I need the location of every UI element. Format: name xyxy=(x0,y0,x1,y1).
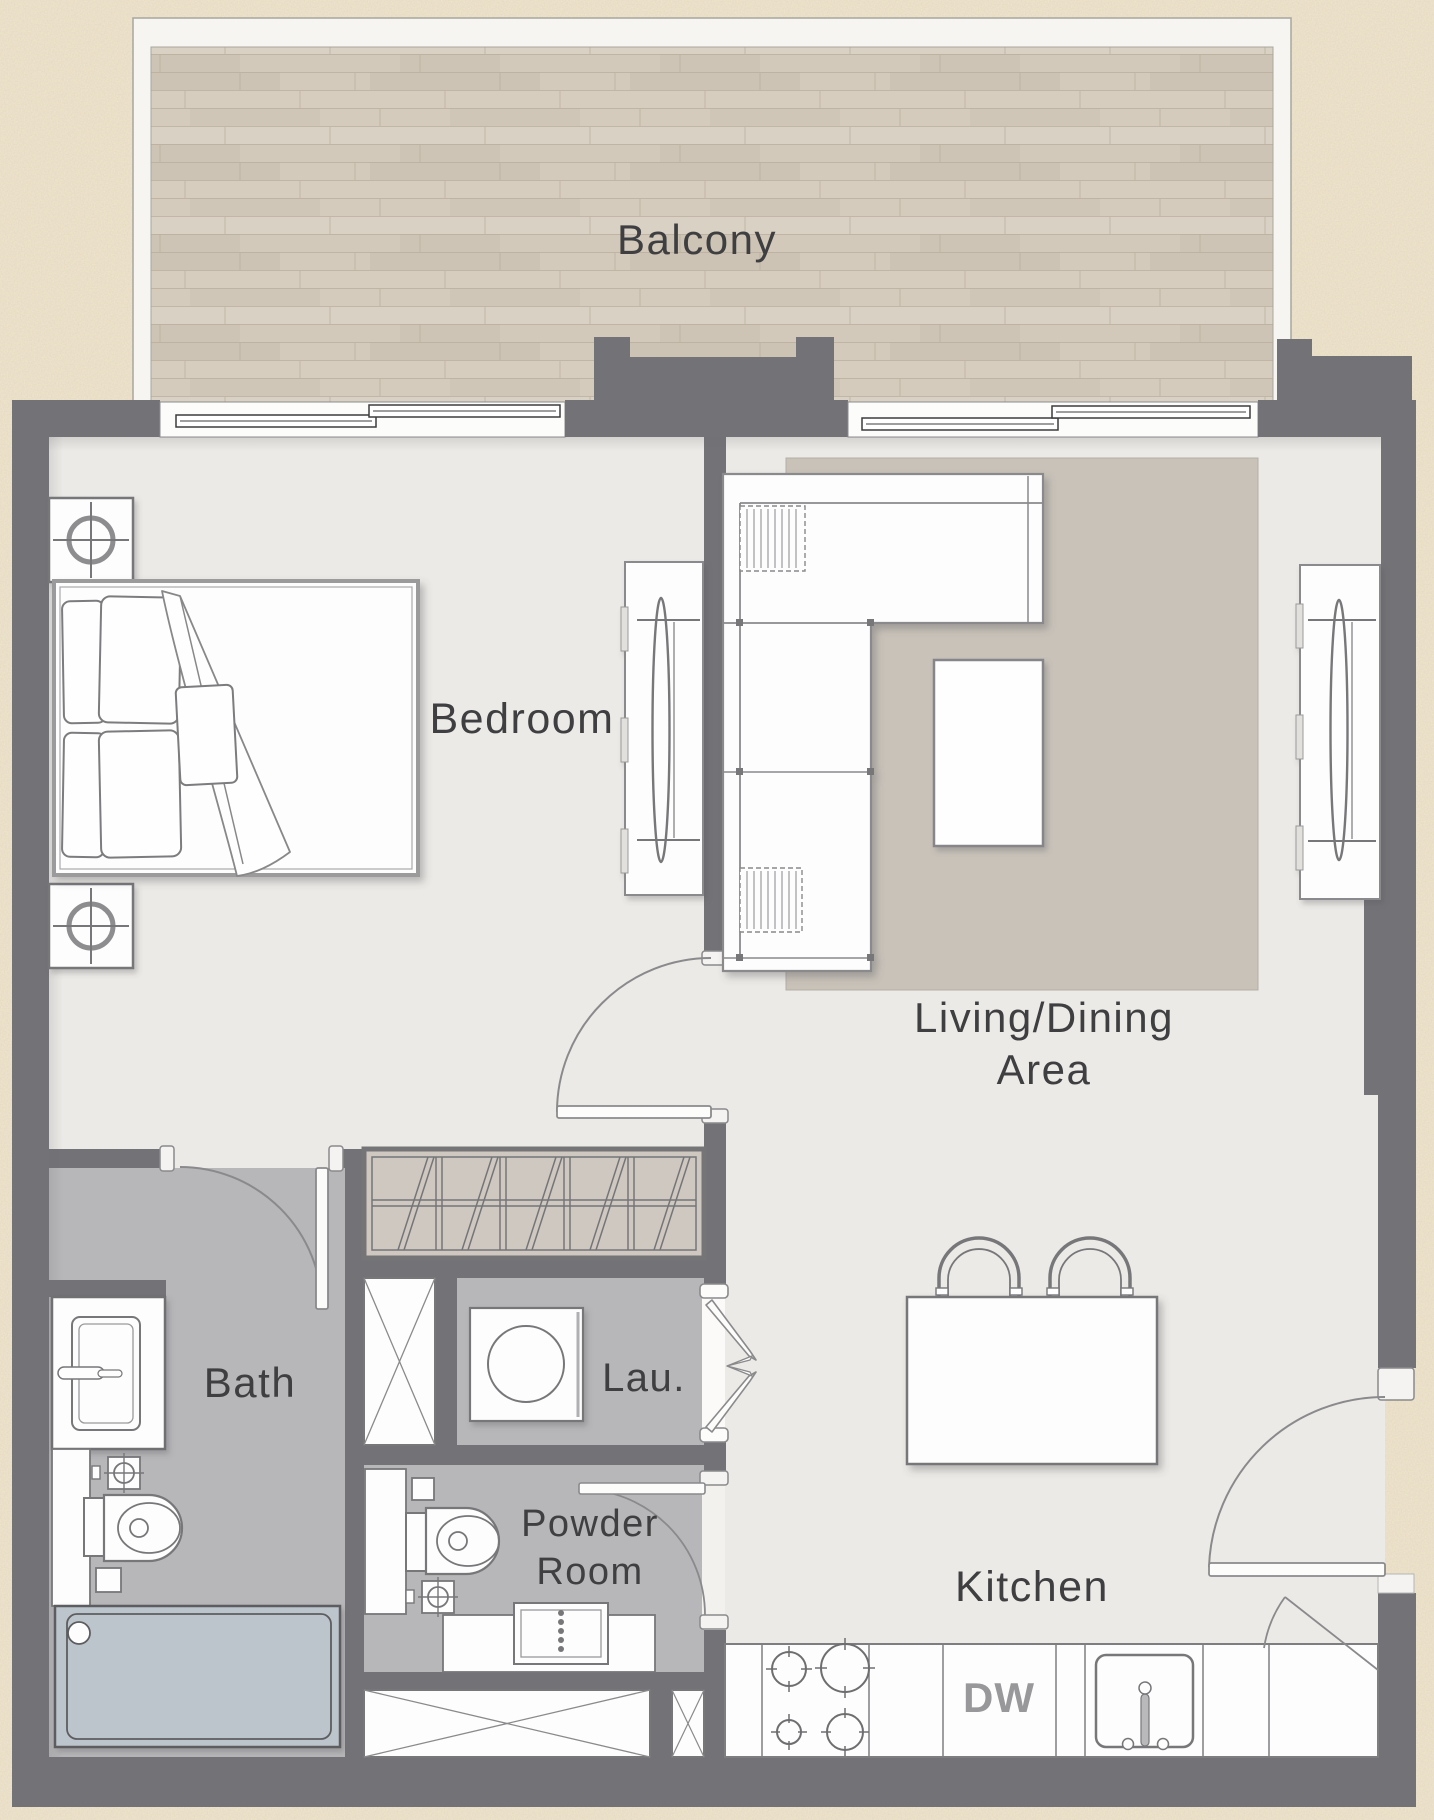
svg-text:Balcony: Balcony xyxy=(617,216,777,263)
svg-text:Bath: Bath xyxy=(204,1359,296,1406)
svg-text:Bedroom: Bedroom xyxy=(430,695,615,743)
svg-text:Powder: Powder xyxy=(521,1503,659,1545)
svg-text:Lau.: Lau. xyxy=(602,1356,686,1400)
svg-text:Kitchen: Kitchen xyxy=(955,1563,1109,1611)
svg-text:Area: Area xyxy=(997,1046,1092,1093)
svg-text:Living/Dining: Living/Dining xyxy=(914,994,1174,1041)
svg-text:Room: Room xyxy=(536,1551,643,1593)
svg-text:DW: DW xyxy=(963,1674,1035,1721)
